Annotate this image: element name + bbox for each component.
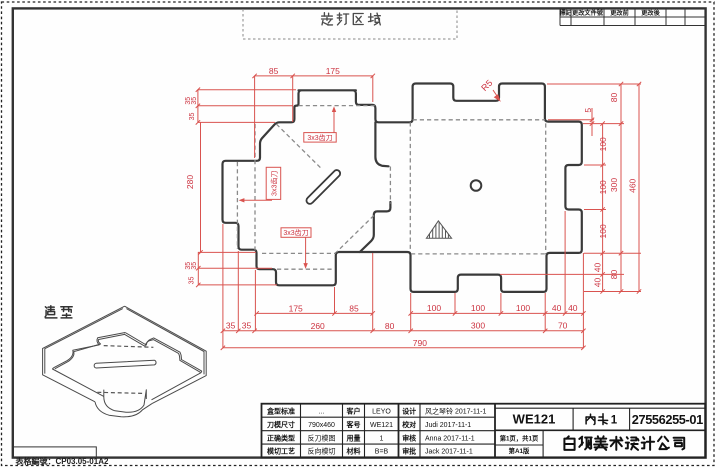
svg-text:175: 175 [289, 303, 303, 313]
svg-text:35: 35 [191, 262, 198, 270]
svg-text:盒型标准: 盒型标准 [266, 406, 295, 415]
svg-text:175: 175 [326, 66, 340, 76]
svg-text:35: 35 [191, 97, 198, 105]
svg-text:標記: 標記 [559, 9, 572, 17]
svg-text:B=B: B=B [375, 449, 389, 456]
svg-text:300: 300 [471, 320, 485, 330]
svg-text:用量: 用量 [347, 433, 361, 442]
svg-text:反向模切: 反向模切 [308, 447, 336, 456]
svg-text:100: 100 [598, 224, 608, 238]
svg-text:第1页，共1页: 第1页，共1页 [500, 433, 539, 442]
svg-text:表格編號：CP03.05-01A2: 表格編號：CP03.05-01A2 [15, 456, 109, 466]
svg-text:校对: 校对 [402, 420, 416, 429]
svg-text:35: 35 [242, 320, 252, 330]
svg-text:80: 80 [609, 93, 619, 103]
svg-text:设计: 设计 [402, 406, 416, 415]
svg-text:85: 85 [269, 66, 279, 76]
svg-text:85: 85 [349, 303, 359, 313]
svg-text:40: 40 [552, 303, 562, 313]
svg-text:WE121: WE121 [370, 422, 393, 429]
svg-text:300: 300 [609, 178, 619, 192]
svg-text:70: 70 [558, 320, 568, 330]
svg-text:790x460: 790x460 [308, 422, 335, 429]
svg-text:27556255-01: 27556255-01 [632, 412, 703, 427]
svg-text:Judi 2017-11-1: Judi 2017-11-1 [425, 422, 471, 429]
svg-text:100: 100 [427, 303, 441, 313]
svg-text:正确类型: 正确类型 [267, 433, 295, 442]
svg-text:35: 35 [226, 320, 236, 330]
svg-text:280: 280 [185, 175, 195, 189]
svg-text:3x3齿刀: 3x3齿刀 [283, 229, 308, 237]
svg-text:1: 1 [380, 435, 384, 442]
svg-text:80: 80 [609, 270, 619, 280]
svg-text:R5: R5 [479, 78, 494, 93]
svg-text:...: ... [319, 408, 325, 415]
svg-text:40: 40 [568, 303, 578, 313]
svg-text:更改後: 更改後 [641, 9, 660, 17]
svg-text:反刀模图: 反刀模图 [308, 433, 336, 442]
svg-text:更改文件號: 更改文件號 [572, 9, 604, 17]
svg-text:80: 80 [385, 321, 395, 331]
svg-text:审批: 审批 [402, 447, 416, 456]
svg-text:Anna 2017-11-1: Anna 2017-11-1 [425, 435, 475, 442]
svg-text:材料: 材料 [346, 447, 361, 456]
svg-text:Jack 2017-11-1: Jack 2017-11-1 [425, 449, 473, 456]
svg-text:客户: 客户 [346, 406, 361, 415]
svg-text:40: 40 [593, 263, 603, 273]
svg-text:40: 40 [593, 278, 603, 288]
svg-text:客号: 客号 [346, 420, 361, 429]
svg-text:5: 5 [583, 108, 593, 113]
svg-text:风之琴铃 2017-11-1: 风之琴铃 2017-11-1 [425, 406, 486, 415]
svg-text:35: 35 [189, 277, 196, 285]
svg-text:刀模尺寸: 刀模尺寸 [267, 420, 295, 429]
svg-text:LEYO: LEYO [372, 408, 391, 415]
svg-text:1: 1 [611, 415, 618, 427]
svg-text:100: 100 [516, 303, 530, 313]
svg-text:100: 100 [598, 180, 608, 194]
svg-text:460: 460 [627, 178, 637, 192]
svg-text:260: 260 [311, 321, 325, 331]
svg-text:3x3齿刀: 3x3齿刀 [307, 134, 332, 142]
svg-text:100: 100 [598, 137, 608, 151]
svg-text:100: 100 [471, 303, 485, 313]
svg-text:模切工艺: 模切工艺 [267, 447, 295, 456]
svg-text:35: 35 [189, 113, 196, 121]
svg-text:第A1版: 第A1版 [509, 446, 530, 455]
svg-text:WE121: WE121 [513, 412, 556, 427]
svg-text:790: 790 [413, 338, 427, 348]
svg-text:更改前: 更改前 [610, 9, 629, 17]
svg-text:审核: 审核 [402, 433, 416, 442]
svg-text:3x3齿刀: 3x3齿刀 [271, 171, 279, 196]
